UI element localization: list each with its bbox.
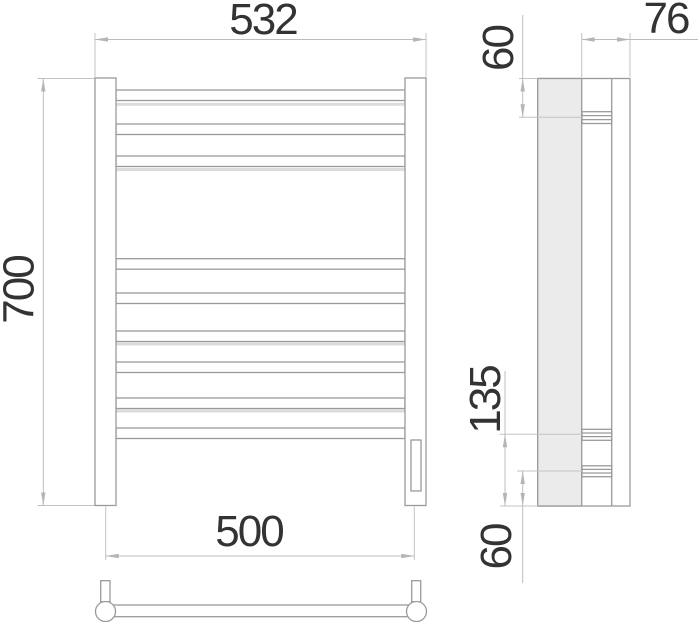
rung (116, 293, 405, 304)
rung (116, 362, 405, 373)
dim-60-top-label: 60 (474, 26, 523, 71)
rung (116, 259, 405, 270)
arrow-right-icon (617, 37, 630, 41)
front-dimensions: 532 700 500 (0, 0, 426, 560)
right-connection-stub (412, 581, 421, 602)
right-post-section (407, 602, 427, 622)
heating-element (411, 440, 421, 491)
rung-reflection (116, 410, 405, 413)
arrow-right-icon (401, 554, 414, 558)
side-view (538, 79, 630, 507)
arrow-up-icon (41, 79, 45, 92)
dim-76-label: 76 (644, 0, 689, 43)
rung (116, 331, 405, 342)
left-post (95, 78, 116, 506)
arrow-down-icon (41, 493, 45, 506)
arrow-down-icon (521, 104, 525, 117)
arrow-up-icon (521, 471, 525, 484)
arrow-left-icon (95, 37, 108, 41)
wall-bracket-middle (582, 429, 612, 440)
dim-60-bottom-label: 60 (472, 524, 521, 569)
wall-bracket-top (582, 112, 612, 124)
rung (116, 156, 405, 167)
rung-reflection (116, 343, 405, 346)
front-view (95, 78, 426, 506)
rung (116, 124, 405, 135)
left-post-section (96, 602, 116, 622)
arrow-down-icon (503, 493, 507, 506)
wall-bracket-bottom (582, 466, 612, 477)
dimension-wall-depth: 76 (582, 0, 698, 77)
bottom-view (96, 581, 427, 622)
left-connection-stub (101, 581, 110, 602)
rung (116, 90, 405, 101)
towel-rail-drawing: 532 700 500 (0, 0, 700, 622)
arrow-up-icon (521, 79, 525, 92)
arrow-up-icon (503, 434, 507, 447)
rung-reflection (116, 168, 405, 171)
rung (116, 398, 405, 409)
technical-drawing-canvas: 532 700 500 (0, 0, 700, 622)
arrow-right-icon (413, 37, 426, 41)
arrow-left-icon (582, 37, 595, 41)
rung (116, 428, 405, 439)
dim-532-label: 532 (229, 0, 297, 44)
dim-135-label: 135 (461, 366, 510, 434)
dim-700-label: 700 (0, 256, 44, 324)
arrow-down-icon (521, 493, 525, 506)
side-profile (538, 79, 582, 507)
rung-reflection (116, 103, 405, 106)
arrow-left-icon (106, 554, 119, 558)
rail-tube (106, 605, 417, 617)
dimension-connection-spacing: 500 (106, 507, 415, 561)
dim-500-label: 500 (215, 507, 283, 556)
dimension-overall-height: 700 (0, 79, 95, 506)
dimension-overall-width: 532 (95, 0, 426, 77)
